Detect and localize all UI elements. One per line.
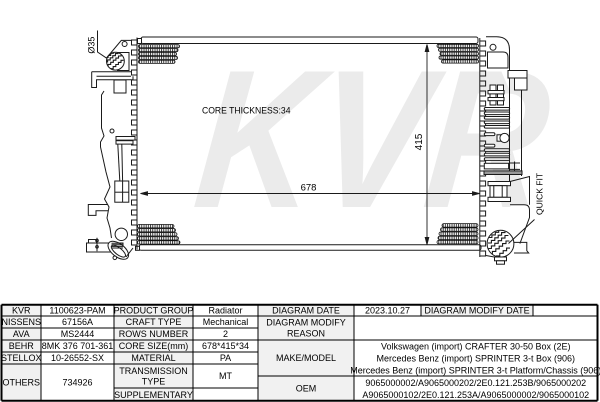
svg-text:TYPE: TYPE [142,377,166,387]
svg-text:2023.10.27: 2023.10.27 [365,306,410,316]
svg-text:OEM: OEM [296,384,317,394]
svg-text:734926: 734926 [62,378,92,388]
svg-text:OTHERS: OTHERS [2,378,40,388]
svg-text:A9065000102/2E0.121.253A/A9065: A9065000102/2E0.121.253A/A9065000002/906… [362,390,589,400]
svg-text:QUICK FIT: QUICK FIT [535,173,545,215]
svg-text:Radiator: Radiator [208,306,242,316]
svg-text:Volkswagen (import) CRAFTER 30: Volkswagen (import) CRAFTER 30-50 Box (2… [381,342,571,352]
svg-text:Mechanical: Mechanical [203,317,249,327]
svg-text:DIAGRAM DATE: DIAGRAM DATE [272,306,340,316]
svg-text:CORE THICKNESS:34: CORE THICKNESS:34 [202,106,291,117]
svg-text:CRAFT TYPE: CRAFT TYPE [126,317,182,327]
svg-text:8MK 376 701-361: 8MK 376 701-361 [42,341,114,351]
svg-text:SUPPLEMENTARY: SUPPLEMENTARY [114,390,193,400]
svg-text:NISSENS: NISSENS [1,317,41,327]
svg-text:10-26552-SX: 10-26552-SX [51,353,104,363]
svg-text:Mercedes Benz (import) SPRINTE: Mercedes Benz (import) SPRINTER 3-t Box … [376,354,575,364]
svg-text:DIAGRAM MODIFY DATE: DIAGRAM MODIFY DATE [424,306,529,316]
svg-text:678: 678 [301,183,317,194]
svg-text:AVA: AVA [13,329,30,339]
svg-text:PA: PA [220,353,231,363]
svg-text:ROWS NUMBER: ROWS NUMBER [119,329,189,339]
svg-text:DIAGRAM MODIFY: DIAGRAM MODIFY [266,318,346,328]
svg-text:STELLOX: STELLOX [1,353,42,363]
svg-text:PRODUCT GROUP: PRODUCT GROUP [114,306,194,316]
svg-text:TRANSMISSION: TRANSMISSION [119,366,188,376]
svg-text:MS2444: MS2444 [61,329,95,339]
svg-text:MT: MT [219,371,232,381]
svg-text:CORE SIZE(mm): CORE SIZE(mm) [119,341,189,351]
svg-text:9065000002/A9065000202/2E0.121: 9065000002/A9065000202/2E0.121.253B/9065… [365,378,586,388]
svg-text:Mercedes Benz (import) SPRINTE: Mercedes Benz (import) SPRINTER 3-t Plat… [350,365,600,375]
svg-text:MAKE/MODEL: MAKE/MODEL [276,353,336,363]
svg-text:MATERIAL: MATERIAL [131,353,175,363]
svg-text:Ø35: Ø35 [87,37,97,54]
svg-text:67156A: 67156A [62,317,93,327]
svg-text:2: 2 [223,329,228,339]
svg-text:1100623-PAM: 1100623-PAM [49,306,105,316]
svg-text:415: 415 [414,133,425,150]
svg-text:678*415*34: 678*415*34 [202,341,249,351]
svg-text:KVR: KVR [12,306,31,316]
svg-text:BEHR: BEHR [9,341,35,351]
svg-text:REASON: REASON [287,328,325,338]
